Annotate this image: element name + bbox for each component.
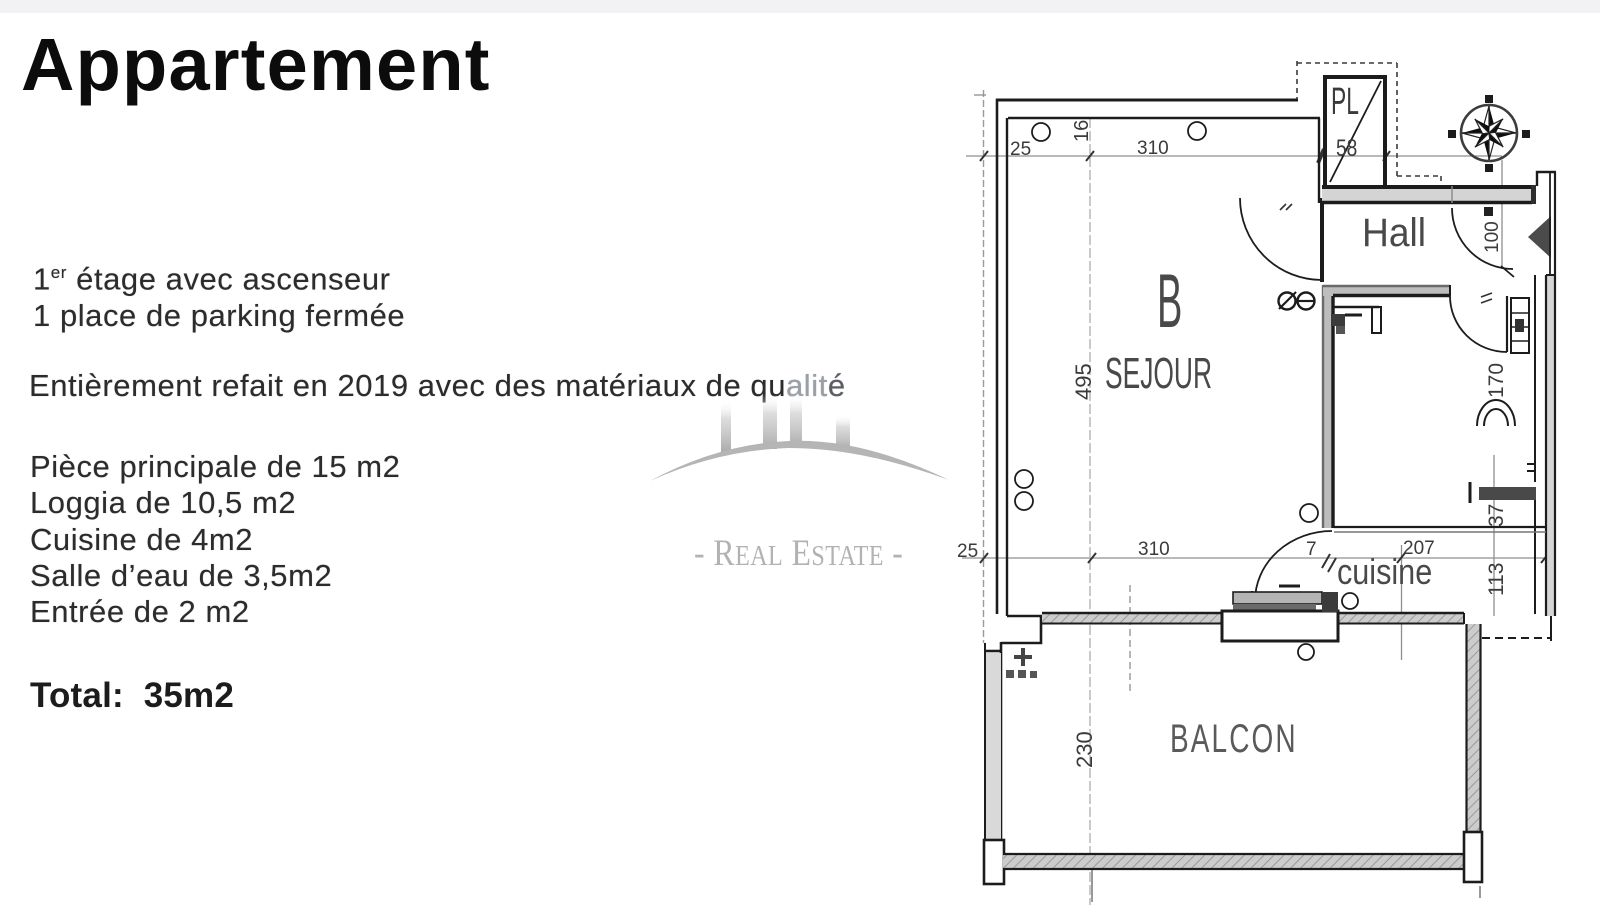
svg-text:113: 113 <box>1485 563 1508 596</box>
svg-text:- REAL ESTATE -: - REAL ESTATE - <box>694 533 903 574</box>
svg-text:BALCON: BALCON <box>1170 717 1298 761</box>
svg-text:25: 25 <box>1010 139 1031 160</box>
svg-text:230: 230 <box>1072 731 1097 768</box>
svg-text:Hall: Hall <box>1362 211 1426 256</box>
svg-text:170: 170 <box>1485 363 1508 398</box>
svg-text:310: 310 <box>1137 138 1169 159</box>
svg-text:7: 7 <box>1306 539 1317 560</box>
svg-text:SEJOUR: SEJOUR <box>1105 348 1212 398</box>
svg-text:cuisine: cuisine <box>1337 553 1432 593</box>
svg-text:495: 495 <box>1071 363 1096 400</box>
svg-text:25: 25 <box>957 541 978 562</box>
svg-text:B: B <box>1157 259 1182 344</box>
svg-text:PL: PL <box>1331 80 1359 122</box>
svg-text:58: 58 <box>1336 134 1357 162</box>
svg-text:16: 16 <box>1071 120 1093 142</box>
svg-text:100: 100 <box>1482 221 1503 253</box>
svg-text:310: 310 <box>1138 539 1170 560</box>
svg-text:37: 37 <box>1485 504 1508 527</box>
